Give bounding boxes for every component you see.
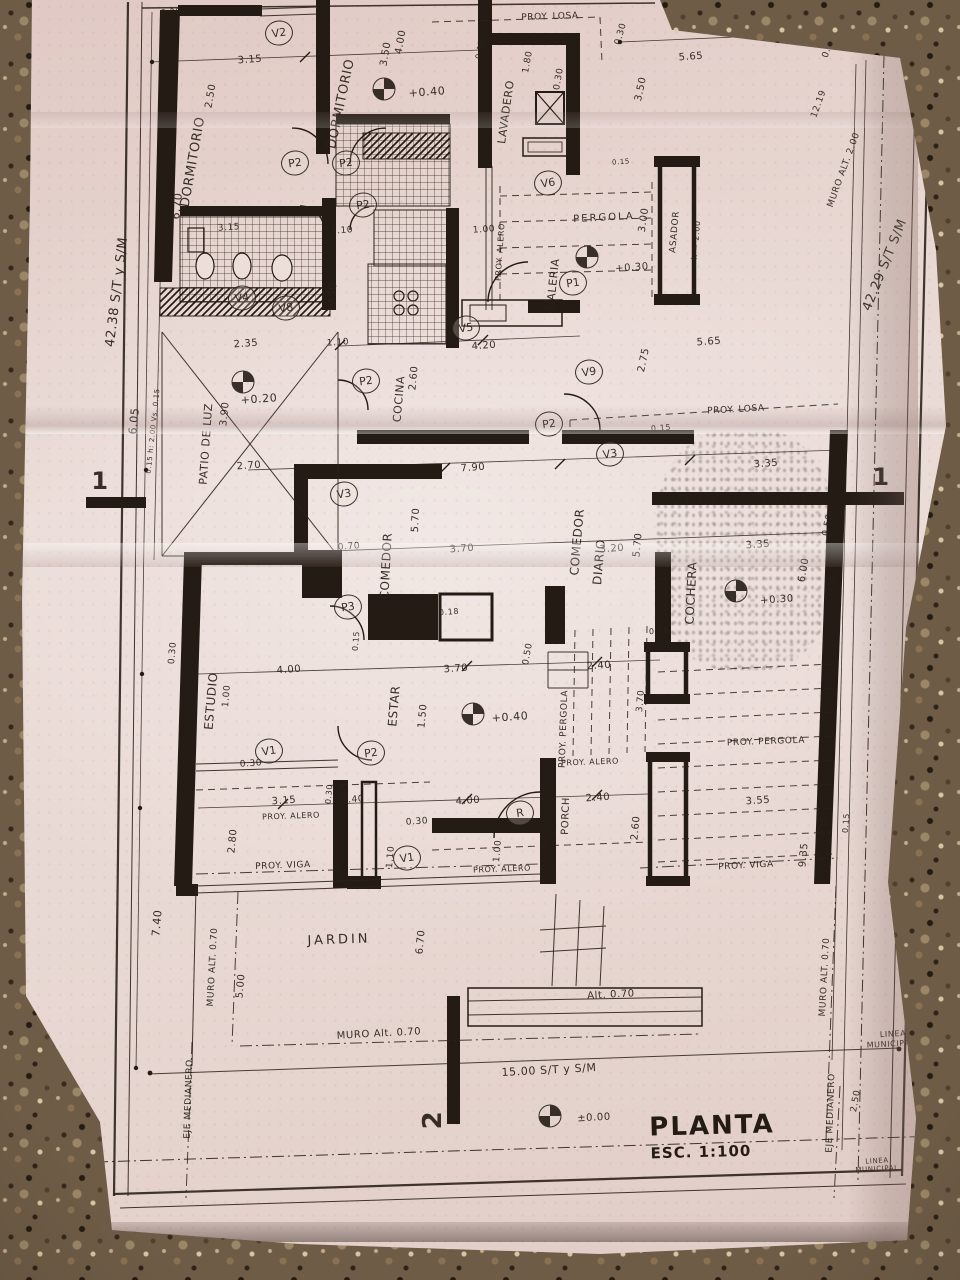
photo-of-floor-plan: { "title_block": { "title": "PLANTA", "s… (0, 0, 960, 1280)
plan-title: PLANTA (649, 1109, 775, 1142)
paper-edge-left (0, 0, 26, 1280)
plan-frame (96, 2, 940, 1208)
walls (86, 0, 904, 1124)
floor-plan-drawing (0, 0, 960, 1280)
plan-scale: ESC. 1:100 (650, 1142, 751, 1163)
dimension-lines (136, 12, 900, 1074)
blueprint-paper: DORMITORIO2.503.150.30DORMITORIO3.504.00… (0, 0, 960, 1280)
